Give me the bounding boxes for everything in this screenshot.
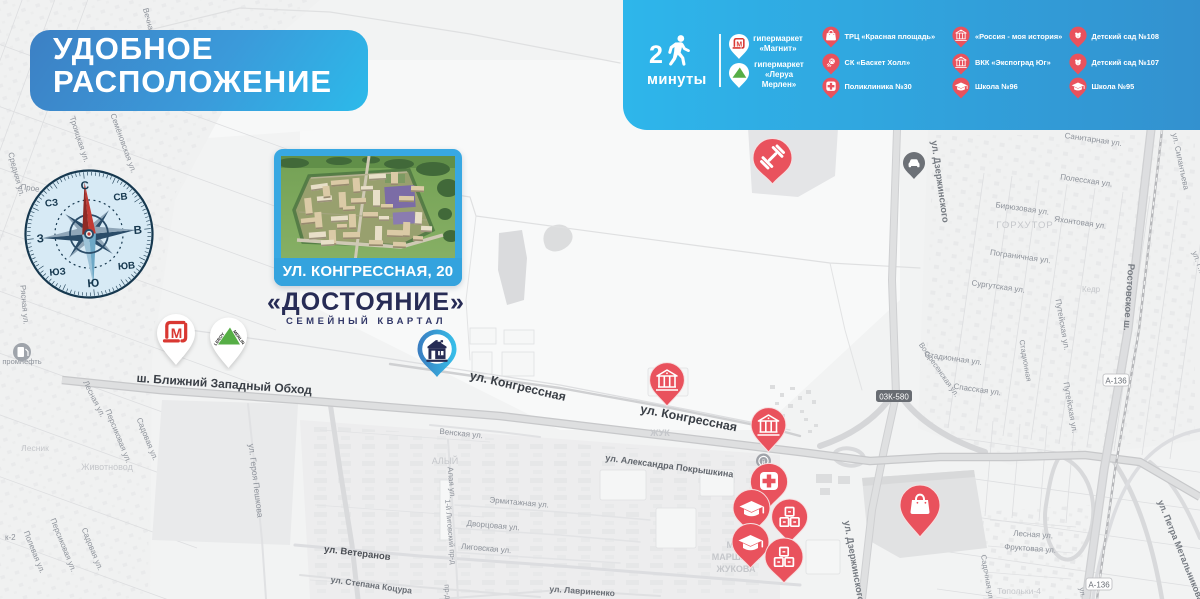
svg-text:2: 2 bbox=[649, 41, 663, 69]
svg-text:СЗ: СЗ bbox=[45, 197, 59, 209]
svg-text:ЮЗ: ЮЗ bbox=[49, 266, 66, 278]
svg-text:минуты: минуты bbox=[647, 72, 707, 88]
svg-text:СВ: СВ bbox=[113, 191, 128, 203]
svg-text:Ю: Ю bbox=[87, 277, 100, 290]
svg-text:ГОРХУТОР: ГОРХУТОР bbox=[996, 220, 1053, 231]
svg-text:З: З bbox=[36, 233, 44, 246]
svg-text:ЮВ: ЮВ bbox=[118, 260, 136, 272]
svg-text:Топольки-4: Топольки-4 bbox=[997, 586, 1041, 596]
svg-text:Лесник: Лесник bbox=[21, 443, 49, 453]
svg-text:С: С bbox=[80, 180, 89, 193]
svg-text:А-136: А-136 bbox=[1088, 581, 1110, 590]
svg-text:Животновод: Животновод bbox=[81, 462, 133, 472]
svg-text:ЖУК: ЖУК bbox=[649, 428, 670, 438]
svg-text:М: М bbox=[171, 326, 183, 341]
svg-text:В: В bbox=[133, 224, 142, 237]
svg-text:А-136: А-136 bbox=[1105, 377, 1127, 386]
svg-text:АЛЫЙ: АЛЫЙ bbox=[432, 455, 459, 466]
svg-text:03К-580: 03К-580 bbox=[879, 393, 909, 402]
svg-text:пр-д: пр-д bbox=[442, 584, 452, 599]
svg-text:Кедр: Кедр bbox=[1082, 285, 1101, 294]
svg-text:к-2: к-2 bbox=[5, 533, 16, 542]
svg-text:М: М bbox=[736, 41, 742, 48]
